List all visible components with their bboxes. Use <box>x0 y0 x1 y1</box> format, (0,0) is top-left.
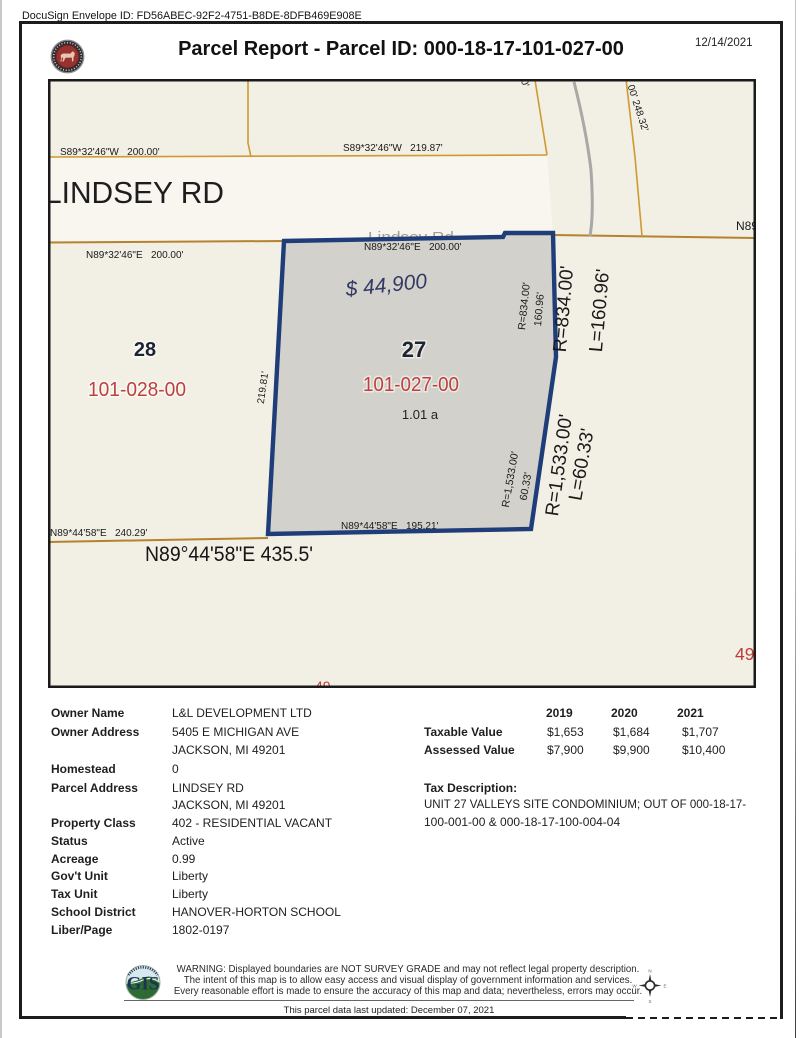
svg-text:W: W <box>632 984 637 989</box>
svg-text:S: S <box>648 999 651 1004</box>
svg-text:N89*32'46"E 200.00': N89*32'46"E 200.00' <box>86 250 184 261</box>
svg-text:GIS: GIS <box>127 974 160 995</box>
svg-text:N89*44'58"E 195.21': N89*44'58"E 195.21' <box>341 521 439 532</box>
svg-text:N89: N89 <box>736 219 756 233</box>
svg-text:E: E <box>663 984 666 989</box>
svg-text:28: 28 <box>134 339 156 361</box>
svg-text:S89*32'46"W 219.87': S89*32'46"W 219.87' <box>343 143 443 154</box>
svg-text:101-028-00: 101-028-00 <box>88 379 186 401</box>
svg-text:1.01 a: 1.01 a <box>402 407 439 422</box>
svg-text:N: N <box>648 969 651 974</box>
svg-text:S89*32'46"W 200.00': S89*32'46"W 200.00' <box>60 147 160 158</box>
svg-text:N89*32'46"E 200.00': N89*32'46"E 200.00' <box>364 242 462 253</box>
svg-text:N89°44'58"E 435.5': N89°44'58"E 435.5' <box>145 543 313 566</box>
svg-text:49: 49 <box>735 644 754 664</box>
svg-text:N89*44'58"E 240.29': N89*44'58"E 240.29' <box>50 528 148 539</box>
svg-text:27: 27 <box>402 337 426 362</box>
svg-text:LINDSEY RD: LINDSEY RD <box>48 175 224 210</box>
svg-text:101-027-00: 101-027-00 <box>363 374 459 396</box>
